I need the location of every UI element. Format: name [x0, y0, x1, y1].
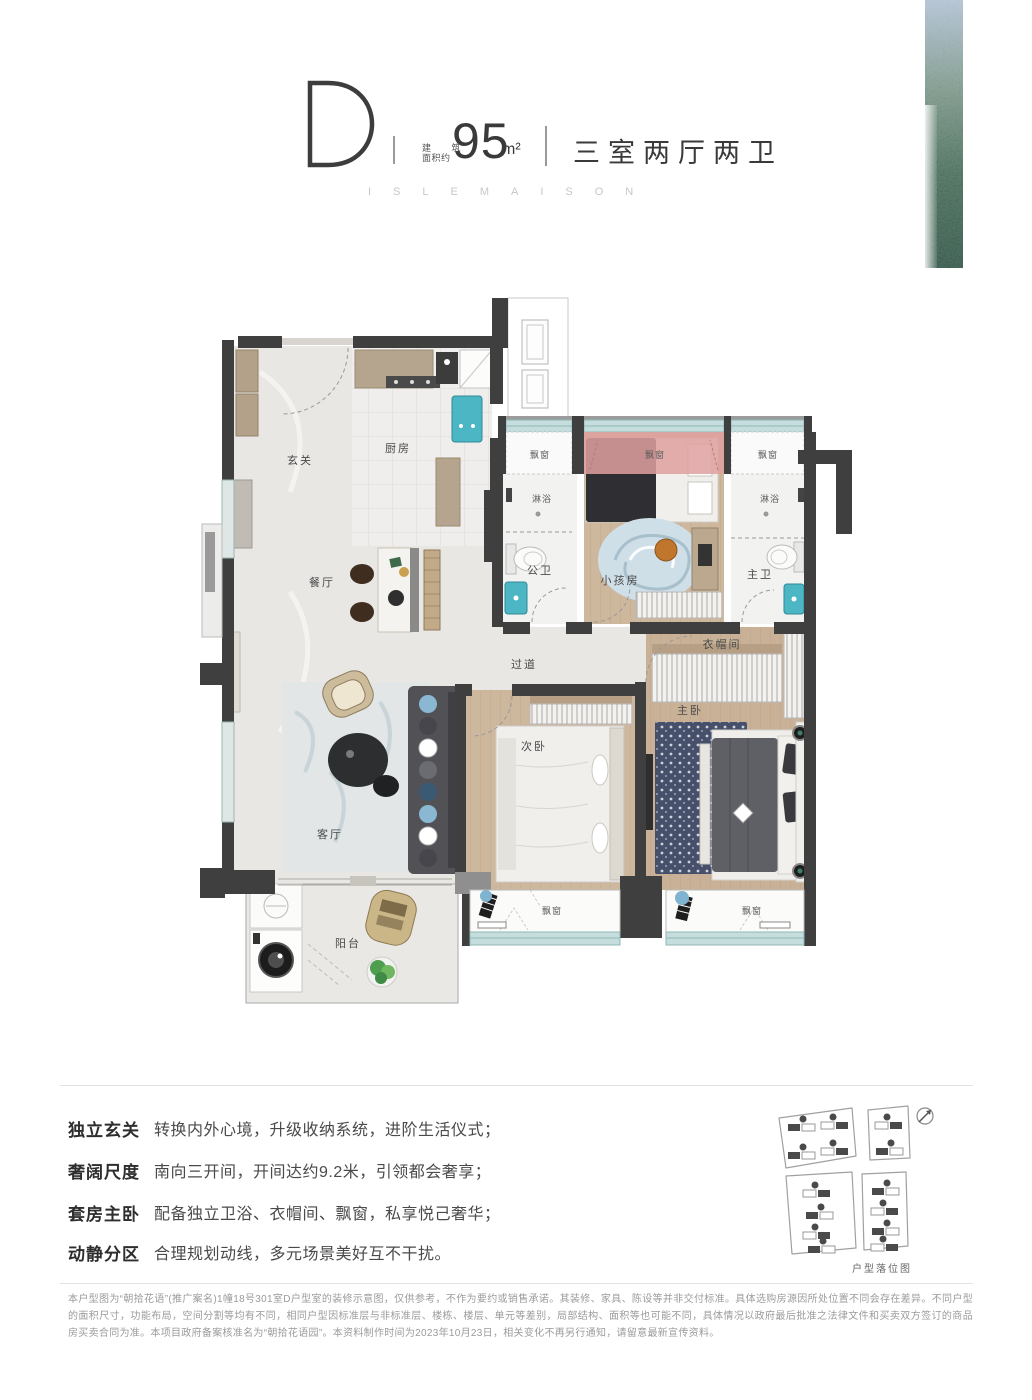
label-master-bath: 主卫: [747, 568, 773, 581]
brand-caption: ISLEMAISON: [368, 186, 655, 198]
label-closet: 衣帽间: [703, 637, 742, 651]
feature-desc: 南向三开间，开间达约9.2米，引领都会奢享；: [154, 1158, 491, 1182]
north-arrow-icon: [917, 1108, 933, 1124]
living-room-furniture: [282, 666, 462, 874]
label-second-bedroom: 次卧: [521, 739, 547, 753]
feature-row: 套房主卧 配备独立卫浴、衣帽间、飘窗，私享悦己奢华；: [68, 1197, 688, 1227]
feature-row: 奢阔尺度 南向三开间，开间达约9.2米，引领都会奢享；: [68, 1155, 688, 1185]
label-dining: 餐厅: [309, 575, 335, 589]
label-bay-guest: 飘窗: [530, 449, 550, 460]
label-foyer: 玄关: [287, 453, 313, 467]
feature-desc: 转换内外心境，升级收纳系统，进阶生活仪式；: [154, 1116, 501, 1140]
label-guest-bath: 公卫: [527, 565, 553, 577]
feature-title: 奢阔尺度: [68, 1158, 144, 1183]
label-bay-kids: 飘窗: [645, 449, 665, 460]
label-bay-master-bath: 飘窗: [758, 449, 778, 460]
label-bay-master: 飘窗: [742, 905, 762, 916]
label-kitchen: 厨房: [385, 442, 411, 455]
disclaimer-text: 本户型图为“朝拾花语”(推广案名)1幢18号301室D户型室的装修示意图，仅供参…: [68, 1291, 973, 1342]
feature-desc: 配备独立卫浴、衣帽间、飘窗，私享悦己奢华；: [154, 1200, 501, 1224]
label-balcony: 阳台: [335, 936, 361, 950]
label-bay-second: 飘窗: [542, 905, 562, 916]
floorplan-poster-page: 建 筑 面积约 95 m² 三室两厅两卫 ISLEMAISON: [0, 0, 1032, 1400]
feature-row: 独立玄关 转换内外心境，升级收纳系统，进阶生活仪式；: [68, 1113, 688, 1143]
label-shower-master: 淋浴: [760, 493, 780, 504]
area-unit: m²: [502, 141, 521, 159]
entry-niche: [508, 298, 568, 418]
divider-above-features: [60, 1085, 973, 1086]
feature-row: 动静分区 合理规划动线，多元场景美好互不干扰。: [68, 1237, 688, 1267]
area-value: 95: [452, 112, 510, 170]
glass-texture-decoration: [925, 0, 963, 273]
rooms-summary: 三室两厅两卫: [573, 131, 783, 170]
label-shower-guest: 淋浴: [532, 493, 552, 504]
unit-letter-d-glyph: [306, 80, 376, 168]
feature-title: 套房主卧: [68, 1200, 144, 1225]
floorplan-drawing: 玄关 厨房 餐厅 飘窗 淋浴 公卫 飘窗 小孩房 飘窗 淋浴 主卫 过道 衣帽间…: [200, 292, 880, 1017]
unit-letter-d: [306, 80, 376, 173]
label-master-bedroom: 主卧: [677, 704, 703, 717]
label-hallway: 过道: [511, 657, 537, 671]
feature-title: 动静分区: [68, 1240, 144, 1265]
label-living: 客厅: [317, 827, 343, 841]
header-divider-2: [545, 126, 547, 166]
header-divider-1: [393, 136, 395, 164]
feature-title: 独立玄关: [68, 1116, 144, 1141]
legend-caption: 户型落位图: [852, 1262, 912, 1275]
label-kids-room: 小孩房: [601, 574, 640, 587]
unit-location-diagram: 户型落位图: [765, 1092, 975, 1287]
feature-desc: 合理规划动线，多元场景美好互不干扰。: [154, 1240, 451, 1264]
